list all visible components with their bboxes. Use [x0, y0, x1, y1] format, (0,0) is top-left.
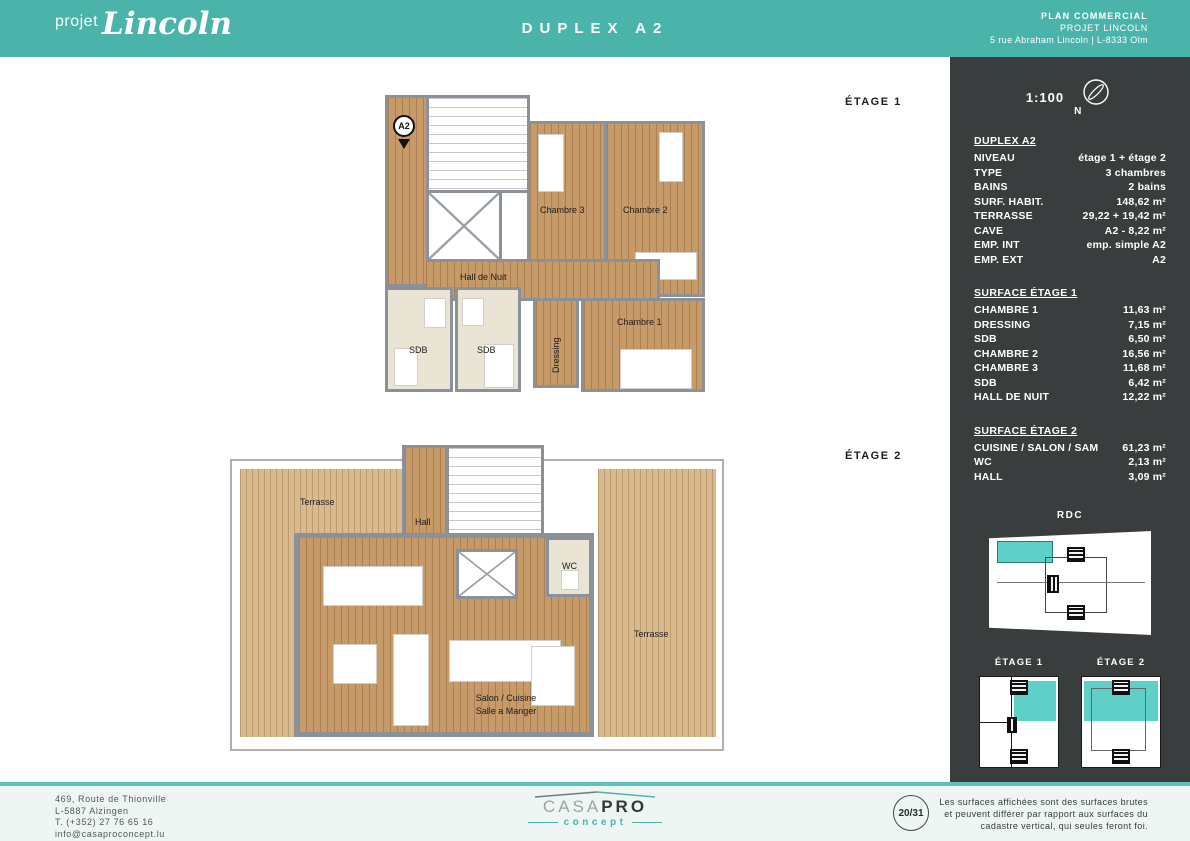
stairs-icon: [1010, 680, 1028, 695]
label-sdb-2: SDB: [477, 345, 496, 355]
surface-label: SDB: [974, 376, 997, 391]
plan-commercial-page: projetLincoln DUPLEX A2 PLAN COMMERCIAL …: [0, 0, 1190, 841]
project-name-label: PROJET LINCOLN: [990, 22, 1148, 34]
spec-row: EMP. INTemp. simple A2: [974, 238, 1166, 253]
stairwell: [446, 445, 544, 545]
surface-row: HALL DE NUIT12,22 m²: [974, 390, 1166, 405]
thumb-etage1-plan: [979, 676, 1059, 768]
toilet: [561, 570, 579, 590]
spec-label: TERRASSE: [974, 209, 1033, 224]
surface-etage1-list: CHAMBRE 111,63 m² DRESSING7,15 m² SDB6,5…: [974, 303, 1166, 405]
surface-value: 2,13 m²: [1128, 455, 1166, 470]
surface-value: 7,15 m²: [1128, 318, 1166, 333]
unit-marker-bubble: A2: [393, 115, 415, 137]
surface-etage2-list: CUISINE / SALON / SAM61,23 m² WC2,13 m² …: [974, 441, 1166, 485]
surface-value: 61,23 m²: [1122, 441, 1166, 456]
spec-value: 148,62 m²: [1116, 195, 1166, 210]
surface-label: HALL DE NUIT: [974, 390, 1049, 405]
surface-label: HALL: [974, 470, 1003, 485]
label-sdb-1: SDB: [409, 345, 428, 355]
spec-row: TERRASSE29,22 + 19,42 m²: [974, 209, 1166, 224]
surface-value: 6,42 m²: [1128, 376, 1166, 391]
surface-value: 16,56 m²: [1122, 347, 1166, 362]
scale-value: 1:100: [1026, 90, 1064, 105]
spec-value: emp. simple A2: [1087, 238, 1166, 253]
kitchen-counter: [393, 634, 429, 726]
rule-right: [632, 822, 662, 823]
spec-row: TYPE3 chambres: [974, 166, 1166, 181]
surface-value: 11,68 m²: [1123, 361, 1166, 376]
surface-etage2-title: SURFACE ÉTAGE 2: [974, 425, 1166, 437]
surface-row: SDB6,42 m²: [974, 376, 1166, 391]
label-terrasse-top-left: Terrasse: [300, 497, 335, 507]
thumb-etage1: ÉTAGE 1: [976, 657, 1062, 768]
terrace-deck-right: [598, 469, 716, 737]
brand-pro-text: PRO: [601, 797, 647, 816]
surface-row: CUISINE / SALON / SAM61,23 m²: [974, 441, 1166, 456]
floor-thumbnails: ÉTAGE 1 ÉTAGE 2: [974, 657, 1166, 768]
elevator-shaft: [426, 190, 502, 262]
surface-row: CHAMBRE 111,63 m²: [974, 303, 1166, 318]
spec-list: NIVEAUétage 1 + étage 2 TYPE3 chambres B…: [974, 151, 1166, 267]
spec-row: BAINS2 bains: [974, 180, 1166, 195]
surface-row: CHAMBRE 311,68 m²: [974, 361, 1166, 376]
spec-label: CAVE: [974, 224, 1003, 239]
spec-row: NIVEAUétage 1 + étage 2: [974, 151, 1166, 166]
spec-label: SURF. HABIT.: [974, 195, 1044, 210]
casapro-concept-row: concept: [525, 817, 665, 828]
plan-canvas: ÉTAGE 1 ÉTAGE 2: [0, 57, 950, 782]
spec-row: EMP. EXTA2: [974, 253, 1166, 268]
label-chambre-3: Chambre 3: [540, 205, 585, 215]
floor-label-etage2: ÉTAGE 2: [845, 450, 902, 462]
compass-north-label: N: [1074, 106, 1081, 117]
floor-label-etage1: ÉTAGE 1: [845, 96, 902, 108]
room-sdb-2: [455, 287, 521, 392]
label-dressing: Dressing: [551, 337, 561, 373]
rdc-mid-line: [997, 582, 1145, 583]
spec-row: CAVEA2 - 8,22 m²: [974, 224, 1166, 239]
surface-row: DRESSING7,15 m²: [974, 318, 1166, 333]
address-line: T. (+352) 27 76 65 16: [55, 817, 166, 829]
unit-title: DUPLEX A2: [974, 135, 1166, 147]
sink: [424, 298, 446, 328]
header-bar: projetLincoln DUPLEX A2 PLAN COMMERCIAL …: [0, 0, 1190, 57]
spec-value: 29,22 + 19,42 m²: [1083, 209, 1166, 224]
spec-row: SURF. HABIT.148,62 m²: [974, 195, 1166, 210]
spec-label: TYPE: [974, 166, 1002, 181]
spec-value: 2 bains: [1128, 180, 1166, 195]
stairs-icon: [1067, 605, 1085, 620]
spec-value: A2 - 8,22 m²: [1105, 224, 1166, 239]
label-terrasse-right: Terrasse: [634, 629, 669, 639]
surface-label: CUISINE / SALON / SAM: [974, 441, 1098, 456]
elevator-icon: [1047, 575, 1059, 593]
elevator-shaft: [456, 549, 518, 599]
disclaimer-line: cadastre vertical, qui seules feront foi…: [939, 820, 1148, 832]
disclaimer-line: Les surfaces affichées sont des surfaces…: [939, 796, 1148, 808]
compass-icon: N: [1078, 77, 1114, 117]
surface-value: 3,09 m²: [1128, 470, 1166, 485]
room-chambre-1: [581, 298, 705, 392]
label-wc: WC: [562, 561, 577, 571]
spec-label: EMP. EXT: [974, 253, 1023, 268]
surface-label: SDB: [974, 332, 997, 347]
surface-value: 11,63 m²: [1123, 303, 1166, 318]
surface-label: CHAMBRE 1: [974, 303, 1038, 318]
spec-value: étage 1 + étage 2: [1078, 151, 1166, 166]
header-meta: PLAN COMMERCIAL PROJET LINCOLN 5 rue Abr…: [990, 10, 1148, 46]
unit-marker-pointer: [398, 139, 410, 149]
bed: [620, 349, 692, 389]
surface-label: DRESSING: [974, 318, 1030, 333]
floorplan-etage1: Chambre 3 Chambre 2 Hall de Nuit Chambre…: [385, 95, 710, 395]
stairs-icon: [1067, 547, 1085, 562]
floorplan-etage2: Terrasse Hall WC Terrasse Salon / Cuisin…: [230, 445, 730, 755]
surface-row: WC2,13 m²: [974, 455, 1166, 470]
stairs-icon: [1010, 749, 1028, 764]
label-hall-de-nuit: Hall de Nuit: [460, 272, 507, 282]
info-panel: 1:100 N DUPLEX A2 NIVEAUétage 1 + étage …: [950, 57, 1190, 782]
room-sdb-1: [385, 287, 453, 392]
stairs-icon: [1112, 680, 1130, 695]
spec-label: BAINS: [974, 180, 1008, 195]
address-line: L-5887 Alzingen: [55, 806, 166, 818]
elevator-icon: [1007, 717, 1017, 733]
rdc-thumbnail: [989, 531, 1151, 635]
sink: [462, 298, 484, 326]
thumb-etage2: ÉTAGE 2: [1078, 657, 1164, 768]
surface-value: 12,22 m²: [1122, 390, 1166, 405]
scale-row: 1:100 N: [974, 75, 1166, 119]
casapro-logo: CASAPRO concept: [525, 790, 665, 828]
rule-left: [528, 822, 558, 823]
label-chambre-1: Chambre 1: [617, 317, 662, 327]
side-table: [333, 644, 377, 684]
surface-etage1-title: SURFACE ÉTAGE 1: [974, 287, 1166, 299]
brand-concept-text: concept: [564, 817, 627, 828]
label-salon-cuisine: Salon / Cuisine: [426, 693, 586, 703]
doc-type-label: PLAN COMMERCIAL: [990, 10, 1148, 22]
surface-row: CHAMBRE 216,56 m²: [974, 347, 1166, 362]
unit-marker-a2: A2: [393, 115, 415, 149]
company-address: 469, Route de Thionville L-5887 Alzingen…: [55, 794, 166, 840]
label-chambre-2: Chambre 2: [623, 205, 668, 215]
footer-bar: 469, Route de Thionville L-5887 Alzingen…: [0, 786, 1190, 841]
label-hall: Hall: [415, 517, 431, 527]
rdc-thumb-label: RDC: [974, 510, 1166, 521]
surface-row: SDB6,50 m²: [974, 332, 1166, 347]
thumb-etage2-label: ÉTAGE 2: [1078, 657, 1164, 668]
brand-casa-text: CASA: [543, 797, 601, 816]
disclaimer-line: et peuvent différer par rapport aux surf…: [939, 808, 1148, 820]
surface-label: WC: [974, 455, 992, 470]
spec-value: 3 chambres: [1106, 166, 1166, 181]
stairwell: [426, 95, 530, 193]
project-address-label: 5 rue Abraham Lincoln | L-8333 Olm: [990, 34, 1148, 46]
spec-label: NIVEAU: [974, 151, 1015, 166]
thumb-etage2-plan: [1081, 676, 1161, 768]
surface-row: HALL3,09 m²: [974, 470, 1166, 485]
surface-value: 6,50 m²: [1128, 332, 1166, 347]
thumb-etage1-label: ÉTAGE 1: [976, 657, 1062, 668]
address-line: info@casaproconcept.lu: [55, 829, 166, 841]
wardrobe: [538, 134, 564, 192]
stairs-icon: [1112, 749, 1130, 764]
sofa: [323, 566, 423, 606]
surface-label: CHAMBRE 2: [974, 347, 1038, 362]
surface-label: CHAMBRE 3: [974, 361, 1038, 376]
page-number-badge: 20/31: [893, 795, 929, 831]
etage2-inner-outline: [1091, 688, 1146, 751]
address-line: 469, Route de Thionville: [55, 794, 166, 806]
spec-value: A2: [1152, 253, 1166, 268]
label-salle-a-manger: Salle a Manger: [426, 706, 586, 716]
spec-label: EMP. INT: [974, 238, 1020, 253]
surfaces-disclaimer: Les surfaces affichées sont des surfaces…: [939, 796, 1148, 832]
closet: [659, 132, 683, 182]
casapro-wordmark: CASAPRO: [525, 798, 665, 816]
